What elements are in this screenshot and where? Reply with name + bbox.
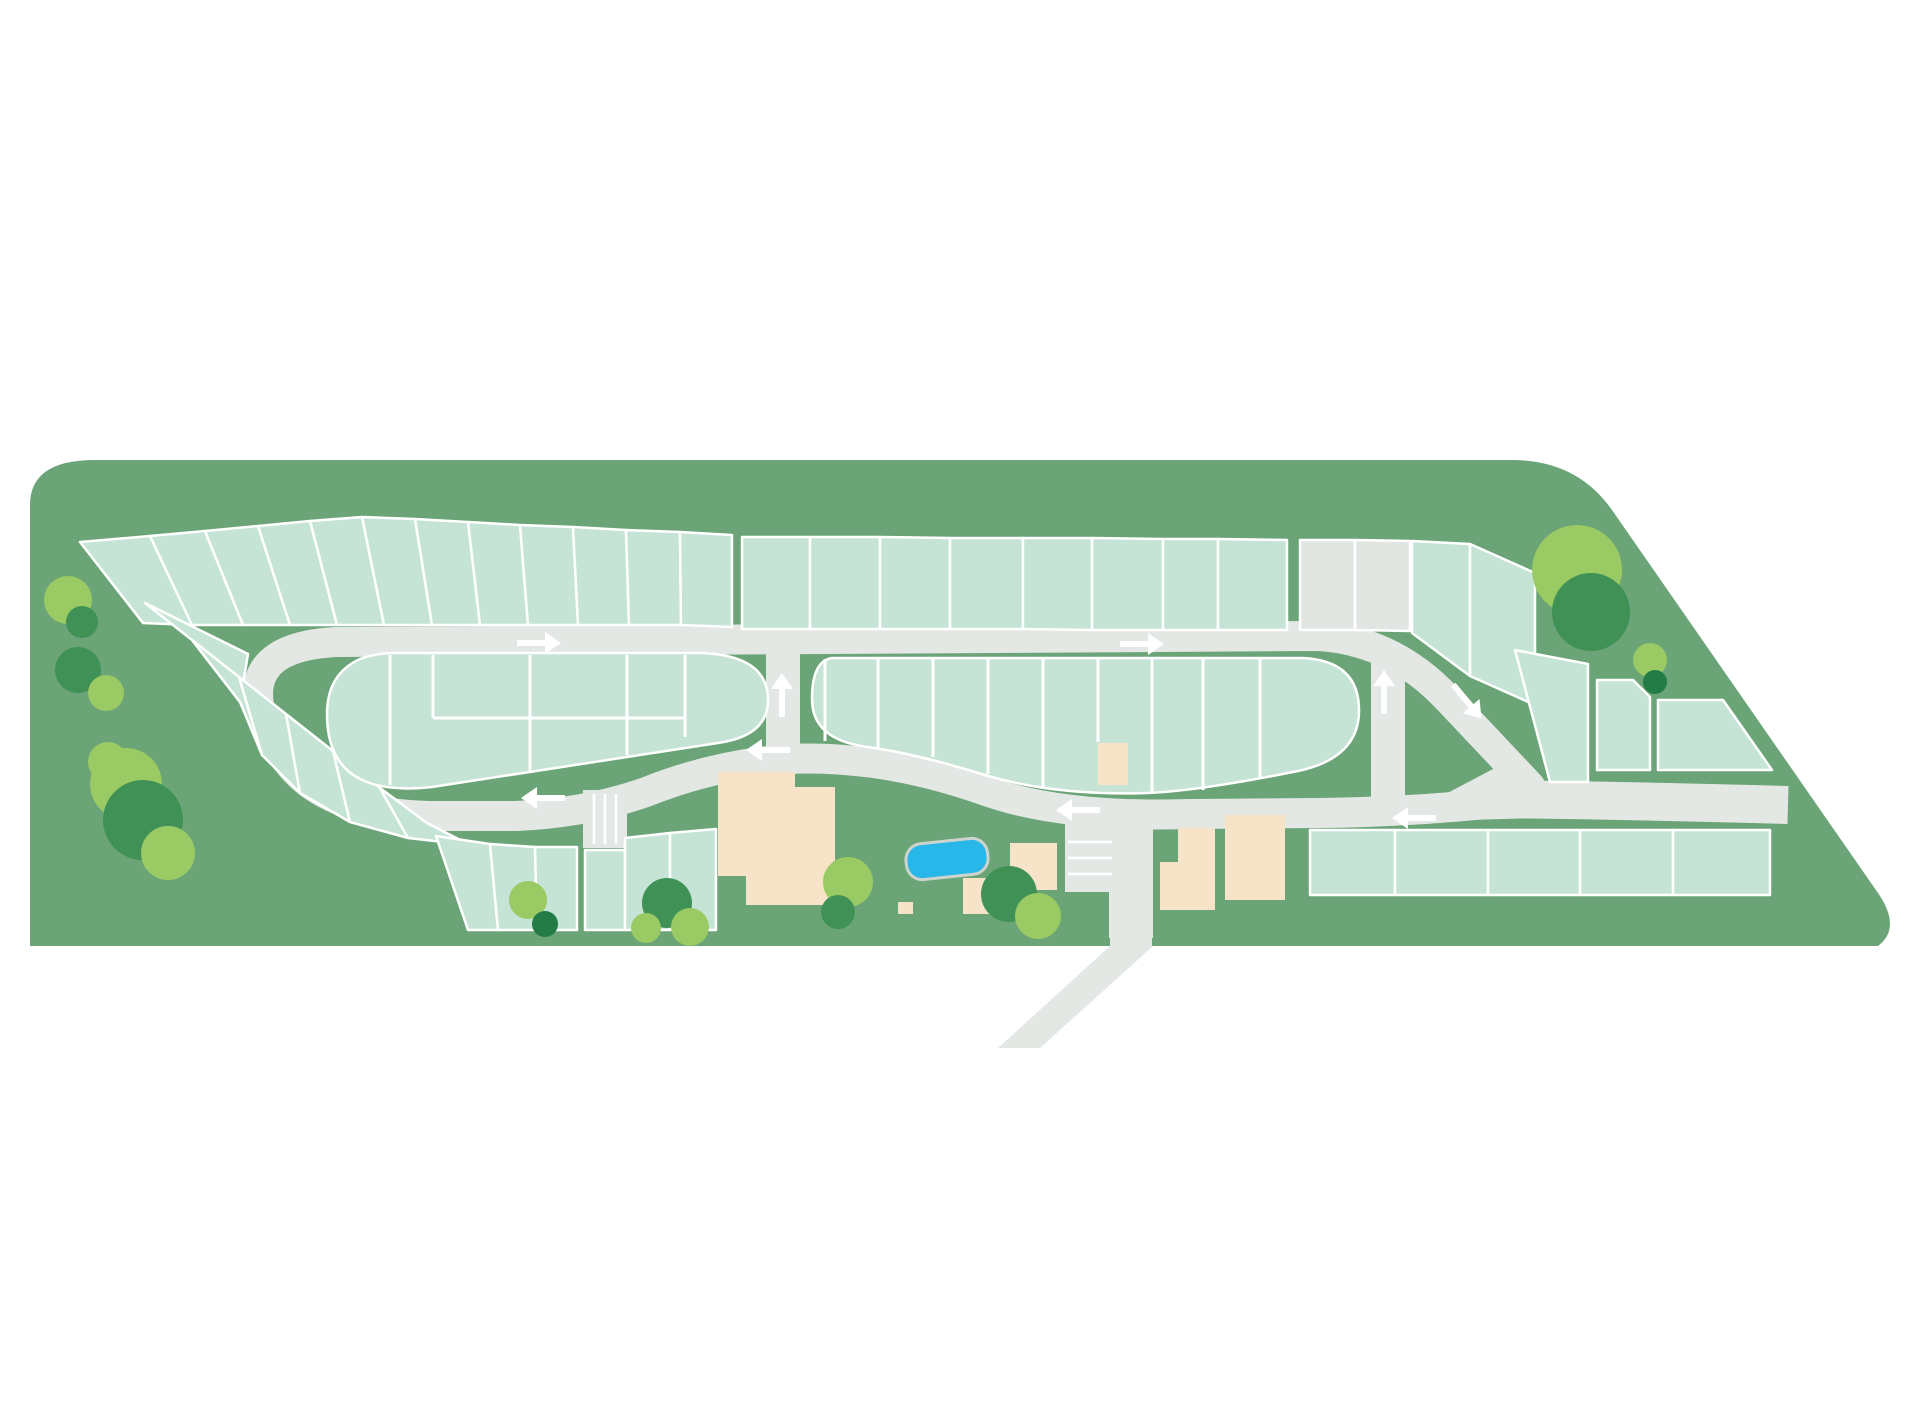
lot-top-row-center-4[interactable]: [950, 538, 1023, 629]
tree-deep-21: [1643, 670, 1667, 694]
lot-south-row-west-4[interactable]: [585, 850, 625, 930]
lot-top-row-west-8[interactable]: [468, 522, 528, 625]
lot-top-row-center-7[interactable]: [1163, 539, 1218, 630]
lot-group-top-row-center: [742, 537, 1287, 630]
lot-top-row-center-8[interactable]: [1218, 539, 1287, 630]
lot-south-row-east-3[interactable]: [1488, 830, 1580, 895]
lot-south-row-east-5[interactable]: [1673, 830, 1770, 895]
lot-top-row-west-9[interactable]: [520, 525, 578, 625]
tree-dark-2: [66, 606, 98, 638]
road-spur-east: [1500, 799, 1788, 805]
lot-top-row-west-11[interactable]: [626, 530, 681, 625]
building-east-2: [1225, 815, 1285, 900]
building-oval-utility: [1098, 743, 1128, 785]
lot-group-top-row-gray: [1300, 540, 1410, 631]
swimming-pool: [904, 837, 989, 881]
lot-group-south-row-east: [1310, 830, 1770, 895]
lot-top-row-center-2[interactable]: [810, 537, 880, 629]
lot-top-row-west-12[interactable]: [680, 532, 732, 627]
building-shed-small: [898, 902, 913, 914]
tree-light-13: [631, 913, 661, 943]
lot-south-row-east-1[interactable]: [1310, 830, 1395, 895]
parking-west: [583, 790, 627, 848]
tree-light-12: [671, 908, 709, 946]
lot-top-row-west-10[interactable]: [573, 527, 629, 625]
lot-east-wedge-2[interactable]: [1597, 680, 1650, 770]
lot-top-row-gray-2[interactable]: [1355, 540, 1410, 631]
tree-deep-10: [532, 911, 558, 937]
tree-light-4: [88, 675, 124, 711]
lot-top-row-center-5[interactable]: [1023, 538, 1092, 630]
lot-top-row-center-3[interactable]: [880, 537, 950, 629]
parking-east: [1065, 824, 1115, 892]
lot-top-row-gray-1[interactable]: [1300, 540, 1355, 630]
site-map: [0, 0, 1920, 1409]
tree-dark-19: [1552, 573, 1630, 651]
site-map-stage: [0, 0, 1920, 1409]
lot-group-top-row-west: [80, 517, 732, 627]
lot-south-row-east-4[interactable]: [1580, 830, 1673, 895]
lot-top-row-center-6[interactable]: [1092, 538, 1163, 630]
tree-dark-15: [821, 895, 855, 929]
lot-south-row-east-2[interactable]: [1395, 830, 1488, 895]
lot-top-row-center-1[interactable]: [742, 537, 810, 629]
tree-light-8: [141, 826, 195, 880]
tree-light-17: [1015, 893, 1061, 939]
